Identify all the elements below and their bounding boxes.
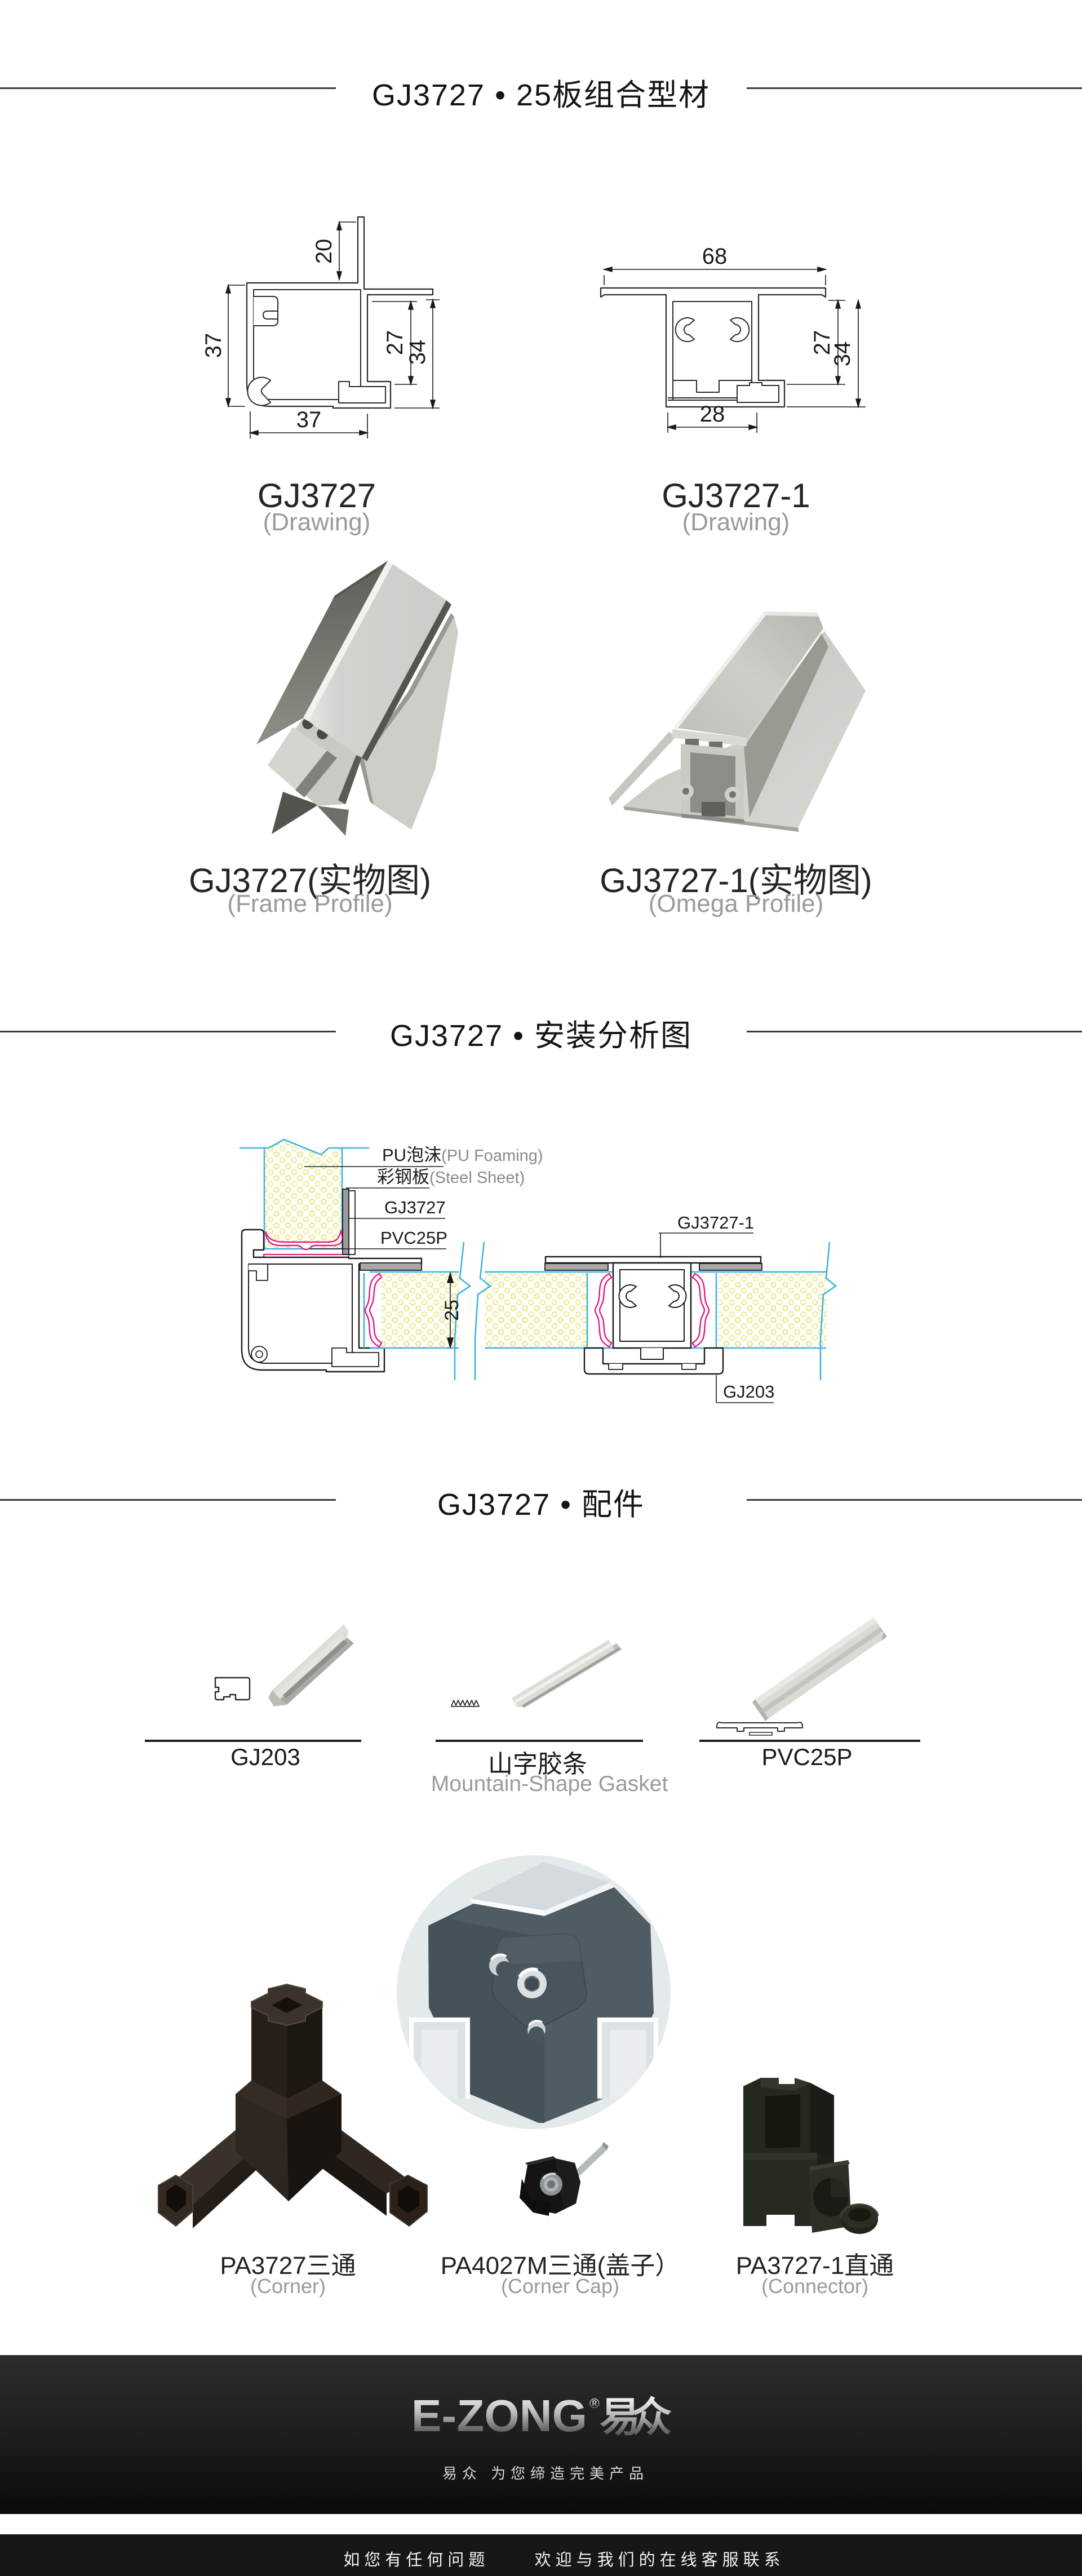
svg-text:20: 20 [312, 239, 336, 264]
svg-text:GJ3727-1: GJ3727-1 [677, 1213, 754, 1232]
svg-text:28: 28 [700, 402, 725, 427]
svg-text:34: 34 [405, 340, 430, 365]
svg-text:68: 68 [702, 244, 728, 269]
svg-text:®: ® [589, 2396, 600, 2411]
svg-text:PU泡沫(PU Foaming): PU泡沫(PU Foaming) [382, 1145, 543, 1165]
svg-text:E-ZONG: E-ZONG [411, 2391, 587, 2438]
svg-text:GJ3727: GJ3727 [384, 1198, 446, 1217]
svg-text:37: 37 [201, 333, 226, 358]
svg-text:27: 27 [383, 330, 407, 356]
svg-text:37: 37 [296, 407, 322, 432]
svg-text:34: 34 [830, 342, 855, 367]
svg-text:易众: 易众 [600, 2395, 672, 2438]
svg-text:PVC25P: PVC25P [380, 1228, 447, 1248]
svg-text:25: 25 [441, 1300, 463, 1321]
svg-text:GJ203: GJ203 [723, 1382, 774, 1402]
svg-text:彩钢板(Steel Sheet): 彩钢板(Steel Sheet) [377, 1167, 525, 1187]
